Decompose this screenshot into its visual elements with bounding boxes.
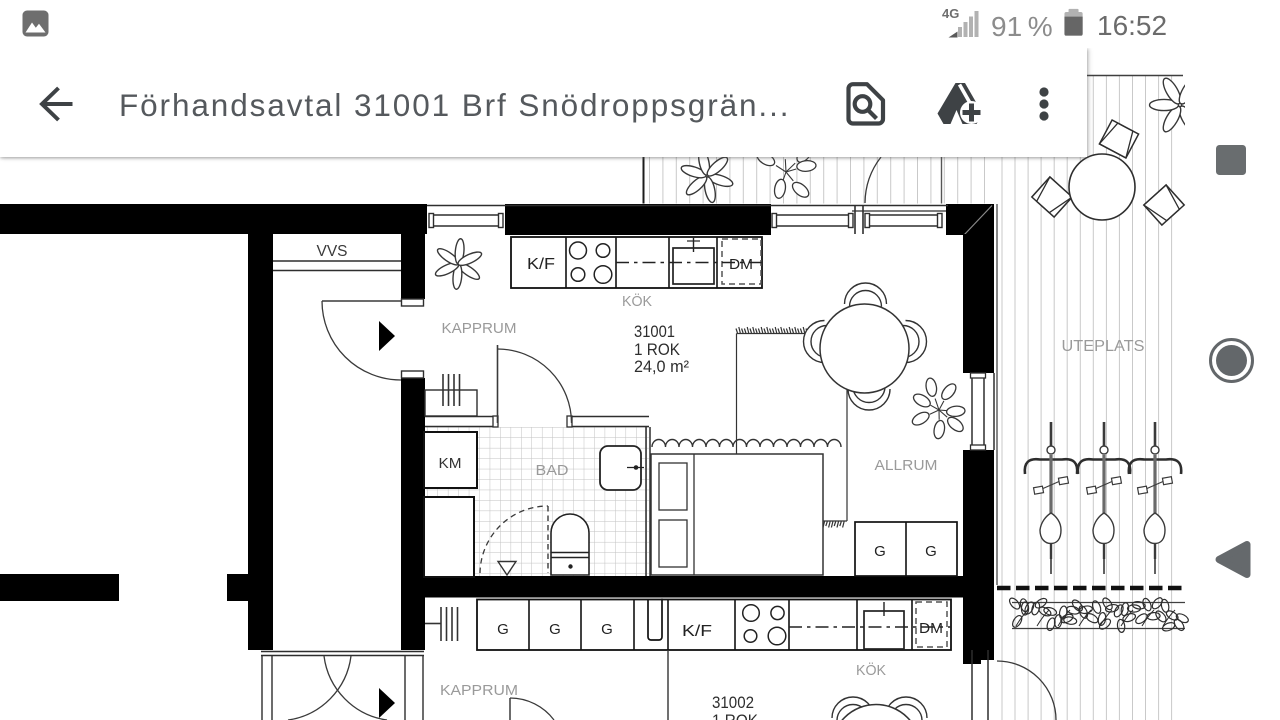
svg-text:DM: DM bbox=[919, 620, 943, 637]
svg-text:KAPPRUM: KAPPRUM bbox=[442, 320, 517, 337]
svg-text:G: G bbox=[549, 621, 561, 638]
svg-text:1 ROK: 1 ROK bbox=[634, 341, 680, 359]
svg-text:KM: KM bbox=[439, 455, 462, 472]
svg-text:ALLRUM: ALLRUM bbox=[875, 457, 938, 474]
svg-text:K/F: K/F bbox=[682, 623, 712, 640]
svg-text:G: G bbox=[497, 621, 509, 638]
svg-text:G: G bbox=[601, 621, 613, 638]
svg-text:31002: 31002 bbox=[712, 694, 754, 712]
svg-text:VVS: VVS bbox=[317, 243, 348, 260]
svg-text:31001: 31001 bbox=[634, 323, 675, 341]
svg-text:24,0 m²: 24,0 m² bbox=[634, 358, 689, 376]
svg-text:1 ROK: 1 ROK bbox=[712, 712, 758, 720]
svg-text:UTEPLATS: UTEPLATS bbox=[1062, 338, 1145, 355]
svg-text:K/F: K/F bbox=[527, 256, 555, 273]
svg-text:G: G bbox=[925, 543, 937, 560]
svg-text:DM: DM bbox=[729, 256, 753, 273]
svg-text:BAD: BAD bbox=[536, 462, 569, 479]
svg-text:G: G bbox=[874, 543, 886, 560]
svg-text:KÖK: KÖK bbox=[856, 661, 886, 679]
svg-text:KÖK: KÖK bbox=[622, 292, 652, 310]
svg-text:KAPPRUM: KAPPRUM bbox=[440, 682, 518, 699]
